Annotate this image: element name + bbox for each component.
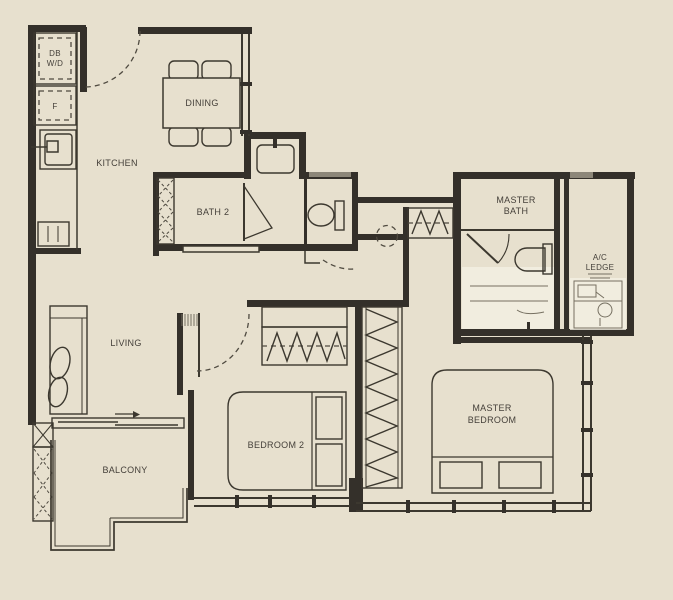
master-bedroom-label-line1: MASTER: [472, 403, 512, 413]
window-mullion: [235, 495, 239, 508]
window-mullion: [240, 82, 252, 86]
shower-area: [462, 267, 554, 329]
wall-segment: [349, 478, 363, 512]
db-wd-label-line1: DB: [49, 49, 61, 58]
window-mullion: [581, 428, 593, 432]
wall-segment: [355, 300, 362, 497]
window-mullion: [240, 130, 252, 134]
wall-segment: [564, 176, 569, 332]
floor-plan: DB W/D F KITCHEN DINING BATH 2 MASTER BA…: [0, 0, 673, 600]
balcony-label: BALCONY: [102, 465, 147, 475]
master-bath-label-line2: BATH: [504, 206, 529, 216]
window-mullion: [502, 500, 506, 513]
fridge-label: F: [52, 102, 57, 111]
window-mullion: [406, 500, 410, 513]
wall-segment: [627, 172, 634, 336]
kitchen-label: KITCHEN: [96, 158, 138, 168]
wall-segment: [138, 27, 252, 34]
dining-label: DINING: [185, 98, 218, 108]
wall-segment: [453, 329, 634, 336]
bath2-label: BATH 2: [197, 207, 230, 217]
ac-ledge-label-line2: LEDGE: [586, 263, 615, 272]
bedroom2-label: BEDROOM 2: [248, 440, 305, 450]
wall-segment: [28, 25, 86, 32]
bath2-vanity: [183, 246, 259, 252]
window-mullion: [581, 340, 593, 344]
ac-ledge-label-line1: A/C: [593, 253, 607, 262]
wall-segment: [33, 248, 81, 254]
living-label: LIVING: [110, 338, 141, 348]
floor-plan-drawing: DB W/D F KITCHEN DINING BATH 2 MASTER BA…: [0, 0, 673, 600]
wall-segment: [80, 27, 87, 92]
master-bath-label-line1: MASTER: [496, 195, 536, 205]
wall-segment: [453, 337, 590, 343]
wall-segment: [554, 176, 560, 332]
wall-segment: [453, 172, 635, 179]
wall-segment: [358, 234, 408, 240]
wall-segment: [244, 136, 251, 179]
wall-segment: [247, 300, 406, 307]
window-mullion: [268, 495, 272, 508]
wall-segment: [188, 390, 194, 500]
wall-segment: [153, 172, 244, 178]
window-mullion: [452, 500, 456, 513]
wall-tick: [527, 322, 530, 332]
wall-segment: [352, 172, 358, 250]
lintel-bar: [570, 172, 593, 178]
db-wd-label-line2: W/D: [47, 59, 63, 68]
window-mullion: [581, 473, 593, 477]
faucet: [47, 141, 58, 152]
wall-segment: [453, 172, 461, 344]
basin-faucet: [273, 134, 277, 148]
window-mullion: [581, 381, 593, 385]
master-bedroom-label-line2: BEDROOM: [468, 415, 517, 425]
ac-ledge-area: [570, 274, 626, 330]
wall-segment: [358, 197, 461, 203]
wall-segment: [28, 25, 36, 425]
wall-segment: [304, 178, 307, 244]
lintel-bar: [309, 172, 351, 177]
window-mullion: [312, 495, 316, 508]
window-mullion: [552, 500, 556, 513]
